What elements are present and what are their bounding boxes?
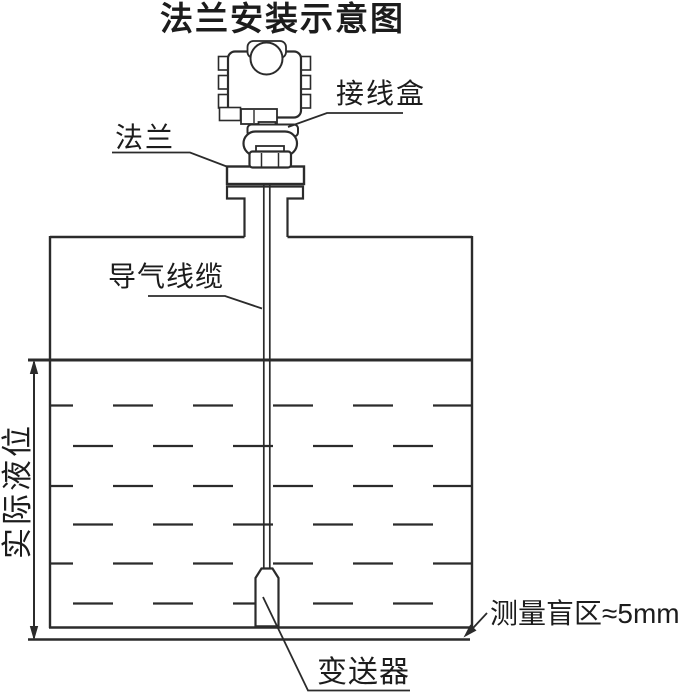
transmitter-head — [219, 41, 311, 168]
flange-label: 法兰 — [115, 123, 175, 154]
conduit-box-left — [220, 108, 241, 121]
vent-cable-label: 导气线缆 — [108, 262, 224, 293]
vent-cable — [264, 184, 270, 569]
nozzle-neck — [227, 187, 303, 238]
flange-installation-diagram: 法兰安装示意图 接线盒 法兰 导气线缆 实际液位 测量盲区≈5mm 变送器 — [0, 0, 700, 700]
diagram-title: 法兰安装示意图 — [160, 1, 405, 37]
hex-nut — [250, 152, 292, 168]
junction-box-label: 接线盒 — [336, 79, 426, 110]
transmitter-label: 变送器 — [317, 656, 410, 689]
leader-vent-cable — [148, 296, 262, 309]
flange-plate — [227, 167, 304, 185]
leader-junction-box — [288, 113, 403, 127]
transmitter-probe — [256, 569, 279, 627]
actual-level-label: 实际液位 — [1, 421, 35, 561]
blind-zone-label: 测量盲区≈5mm — [490, 599, 680, 630]
leader-flange — [112, 153, 228, 168]
head-cap — [251, 43, 283, 75]
